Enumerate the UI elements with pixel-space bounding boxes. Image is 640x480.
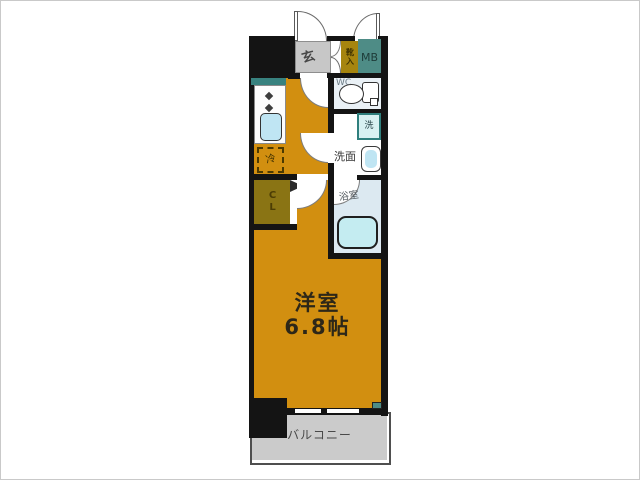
wall-bathroom-bottom: [328, 253, 388, 259]
window-icon: [295, 409, 359, 413]
entrance-area: 玄: [295, 41, 331, 73]
wall-entry-bottom-left: [288, 73, 300, 79]
ac-unit-icon: [372, 402, 382, 409]
wall-closet-bottom: [249, 224, 297, 230]
shoe-cabinet-label: 靴入: [346, 48, 354, 66]
meter-box: MB: [358, 39, 381, 76]
bathroom-sink-icon: [361, 146, 381, 172]
mb-door-arc-icon: [353, 13, 378, 41]
closet: CL: [254, 180, 290, 224]
shoe-cabinet: 靴入: [341, 41, 358, 73]
kitchen-counter: [251, 78, 286, 85]
wall-right: [381, 36, 388, 416]
floor-plan: バルコニー 玄 靴入 MB 冷 CL: [0, 0, 640, 480]
toilet-bowl-icon: [339, 84, 364, 104]
entrance-door-arc-icon: [298, 11, 327, 41]
main-room-size: 6.8帖: [254, 315, 381, 339]
refrigerator-label: 冷: [264, 154, 276, 166]
window-divider: [321, 409, 327, 413]
refrigerator-space: 冷: [257, 147, 284, 173]
main-room-label: 洋室 6.8帖: [254, 291, 381, 339]
wall-top-left-block: [249, 36, 295, 78]
bathtub-icon: [337, 216, 378, 249]
washing-machine-label: 洗: [364, 122, 373, 131]
main-room-name: 洋室: [254, 291, 381, 315]
closet-label: CL: [267, 190, 277, 214]
kitchen-sink-icon: [260, 113, 282, 141]
washroom-label: 洗面: [334, 151, 359, 162]
sink-basin-icon: [365, 150, 377, 168]
entrance-label: 玄: [301, 50, 317, 66]
pillar-bottom-left: [249, 398, 287, 438]
washing-machine-icon: 洗: [357, 113, 381, 140]
toilet-seat-icon: [370, 98, 378, 106]
meter-box-label: MB: [361, 52, 378, 63]
